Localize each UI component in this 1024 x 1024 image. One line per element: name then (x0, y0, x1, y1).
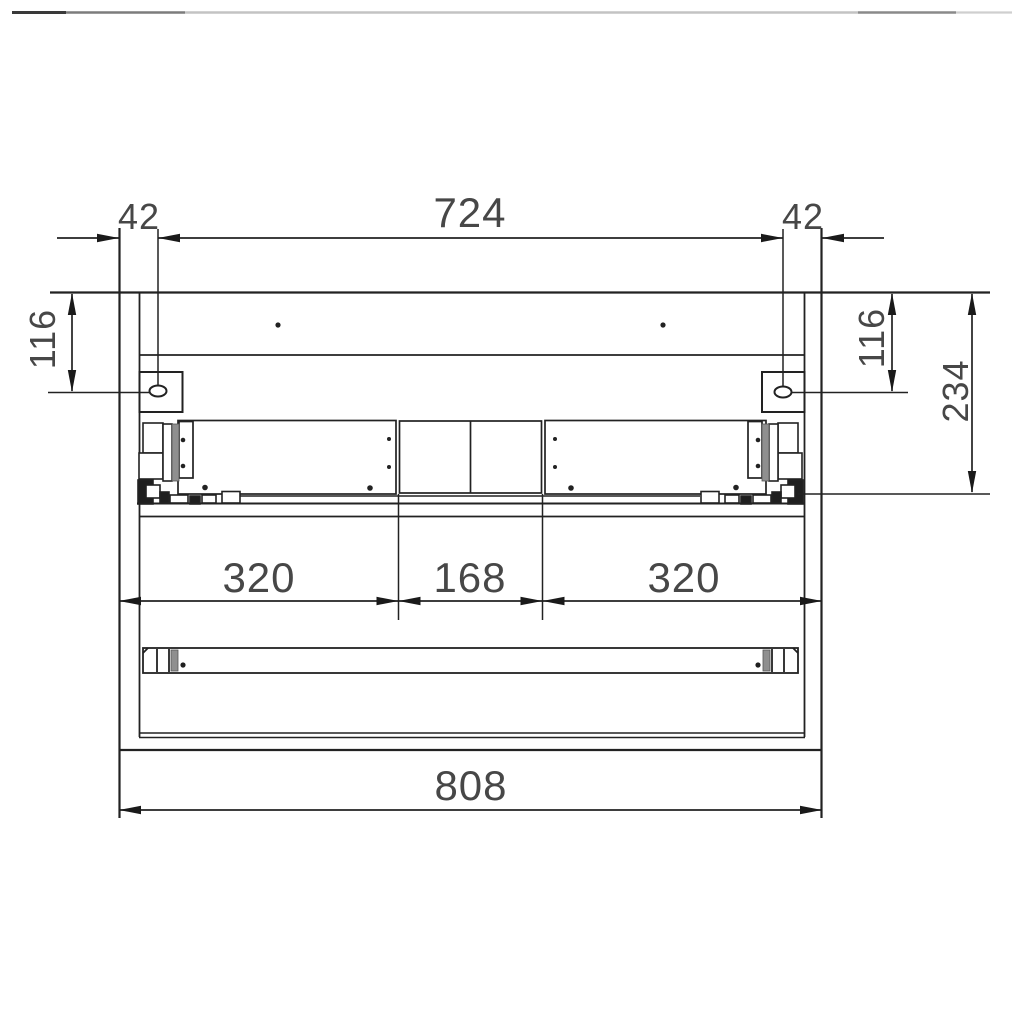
lower-band-right-dot (755, 662, 760, 667)
left-slide-bar (163, 424, 172, 481)
dim-label-42-left: 42 (118, 196, 160, 237)
right-drawer-slide-plate (748, 422, 762, 479)
technical-drawing-canvas: 42 724 42 116 116 234 (0, 0, 1024, 1024)
dim-label-168: 168 (433, 554, 506, 601)
arrow-168-right (521, 597, 543, 605)
arrow-right-outside (822, 234, 844, 242)
right-drawer-panel (545, 421, 766, 495)
arrow-320r-left (543, 597, 565, 605)
dim-label-116-right: 116 (851, 308, 892, 368)
lower-band-left-dot (180, 662, 185, 667)
dimension-top: 42 724 42 (57, 189, 884, 386)
dim-label-116-left: 116 (22, 309, 63, 369)
left-drawer-panel (178, 421, 396, 495)
left-slide-roller-housing (146, 485, 160, 498)
left-slide-front-block (143, 423, 163, 453)
mounting-brackets (140, 372, 805, 412)
dimension-right-116: 116 (791, 293, 908, 393)
upper-drawer-assembly (178, 421, 766, 495)
arrow-724-right (761, 234, 783, 242)
left-drawer-slide-plate (179, 422, 193, 479)
dim-label-320-right: 320 (647, 554, 720, 601)
arrow-left-outside (97, 234, 119, 242)
left-slide-gray-strip (172, 424, 179, 481)
dim-label-808: 808 (434, 762, 507, 809)
right-slide-gray-strip (762, 424, 769, 481)
bracket-slot-right (775, 387, 792, 398)
lower-drawer-band (143, 648, 798, 673)
right-rail-piece-2 (725, 495, 739, 503)
right-rail-piece-1 (753, 495, 771, 503)
dimension-left-116: 116 (22, 293, 149, 393)
lower-band-body (143, 648, 798, 673)
dim-label-320-left: 320 (222, 554, 295, 601)
arrow-724-left (158, 234, 180, 242)
arrow-320r-right (800, 597, 822, 605)
right-rail-piece-3 (701, 492, 719, 504)
arrow-left-116-up (68, 293, 76, 315)
dimension-right-234: 234 (798, 293, 990, 494)
left-rail-piece-1 (170, 495, 188, 503)
arrow-168-left (399, 597, 421, 605)
arrow-808-right (800, 806, 822, 814)
right-slide-roller-housing (781, 485, 795, 498)
right-slide-bar (769, 424, 778, 481)
dim-label-42-right: 42 (782, 196, 824, 237)
arrow-320l-right (377, 597, 399, 605)
top-rail-screw-dot-left (275, 322, 280, 327)
lower-band-left-gray-strip (171, 650, 178, 671)
dimension-middle: 320 168 320 (119, 494, 822, 620)
arrow-234-up (968, 293, 976, 315)
lower-band-right-gray-strip (763, 650, 770, 671)
left-slide-lower-block (139, 453, 163, 479)
right-slide-roller-small (772, 492, 781, 503)
top-rail-screw-dot-right (660, 322, 665, 327)
arrow-left-116-down (68, 370, 76, 392)
dim-label-234: 234 (935, 359, 976, 422)
dim-label-724: 724 (433, 189, 506, 236)
left-rail-piece-3 (222, 492, 240, 504)
right-slide-front-block (778, 423, 798, 453)
technical-drawing-page: 42 724 42 116 116 234 (0, 0, 1024, 1024)
dimension-bottom: 808 (119, 762, 822, 814)
arrow-right-116-down (888, 370, 896, 392)
arrow-320l-left (119, 597, 141, 605)
arrow-808-left (119, 806, 141, 814)
cabinet-carcass (50, 228, 990, 818)
bracket-slot-holes (150, 386, 792, 398)
arrow-234-down (968, 471, 976, 493)
left-rail-piece-2 (202, 495, 216, 503)
left-slide-roller-small (160, 492, 169, 503)
right-slide-lower-block (778, 453, 802, 479)
bracket-slot-left (150, 386, 167, 397)
